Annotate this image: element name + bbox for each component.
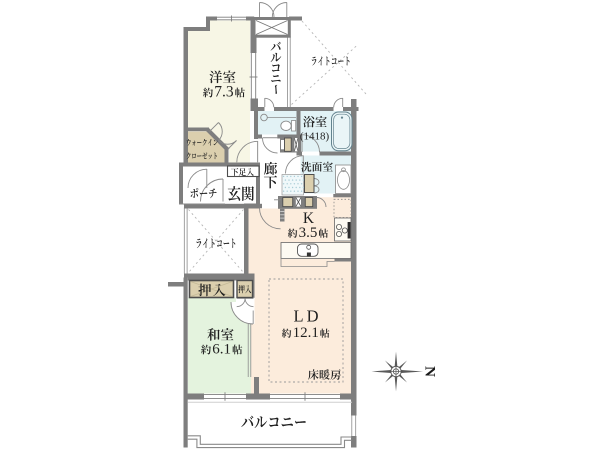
svg-text:7.3: 7.3 — [214, 84, 234, 101]
svg-text:N: N — [422, 366, 438, 377]
svg-text:6.1: 6.1 — [212, 342, 231, 358]
svg-text:3.5: 3.5 — [299, 225, 318, 241]
svg-text:12.1: 12.1 — [293, 325, 319, 341]
svg-text:(1418): (1418) — [300, 131, 330, 143]
svg-text:LD: LD — [294, 307, 322, 326]
